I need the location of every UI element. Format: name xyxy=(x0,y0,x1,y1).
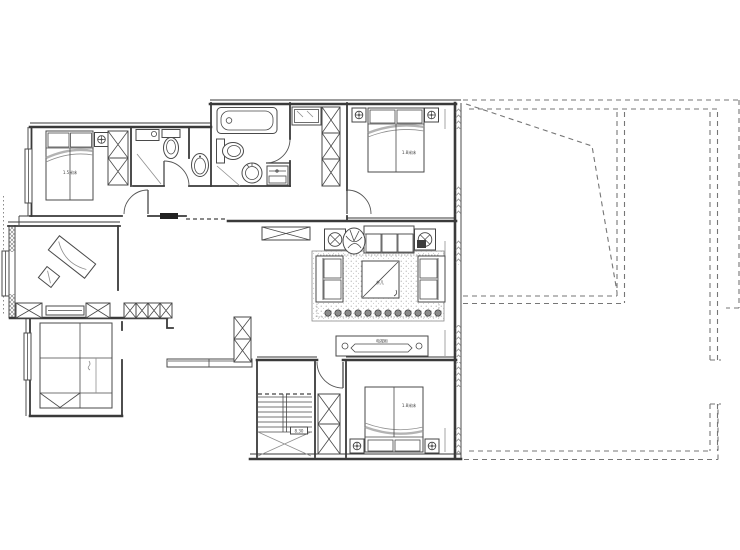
bed-nw xyxy=(46,131,93,200)
hall-cabinet-row xyxy=(124,303,172,318)
cabinet-x xyxy=(234,317,251,339)
armchair-right xyxy=(418,256,445,302)
bed-nw-label: 1.5米床 xyxy=(63,169,77,175)
toilet-bowl xyxy=(164,138,179,159)
bath-shelf xyxy=(136,130,159,141)
wardrobe-x xyxy=(318,394,340,424)
wardrobe-x xyxy=(322,133,340,159)
nightstand xyxy=(95,133,109,147)
nightstand xyxy=(425,439,439,453)
cabinet-x xyxy=(16,303,42,318)
wardrobe-x xyxy=(108,131,128,158)
washer xyxy=(267,166,288,185)
bed-ne-label: 1.8米床 xyxy=(402,149,416,155)
end-table xyxy=(325,229,346,250)
wardrobe-x xyxy=(318,424,340,454)
entry-threshold xyxy=(160,213,178,219)
cabinet-x xyxy=(86,303,110,318)
toilet-tank xyxy=(162,130,180,138)
wardrobe-x xyxy=(322,107,340,133)
armchair-left xyxy=(316,256,343,302)
window-piano-room xyxy=(2,251,9,296)
platform-bed xyxy=(40,323,112,408)
coffee-table-label: 茶几 xyxy=(376,279,384,285)
floor-plan-canvas: 1.5米床 xyxy=(0,0,740,550)
nightstand xyxy=(352,108,366,122)
table-lamp xyxy=(417,240,426,248)
tv-cabinet: 电视柜 xyxy=(336,336,428,356)
stair-label: 8.30 xyxy=(295,429,304,434)
wardrobe-x xyxy=(108,158,128,185)
sideboard xyxy=(262,227,310,240)
plant xyxy=(343,228,365,254)
sofa xyxy=(364,226,414,253)
bed-s-label: 1.8米床 xyxy=(402,402,416,408)
nightstand xyxy=(350,439,364,453)
nightstand xyxy=(425,108,439,122)
coffee-table: 茶几 xyxy=(362,261,399,298)
cabinet-x xyxy=(234,339,251,362)
wardrobe-x xyxy=(322,159,340,186)
window-bedroom-nw xyxy=(25,149,32,203)
window-tatami-room xyxy=(24,333,31,380)
floor-plan-drawing: 1.5米床 xyxy=(0,0,740,550)
tv-cabinet-label: 电视柜 xyxy=(376,338,388,344)
